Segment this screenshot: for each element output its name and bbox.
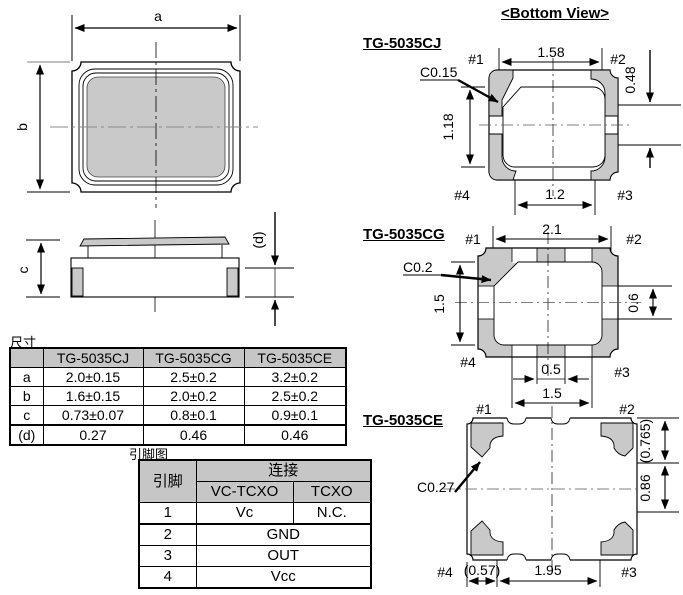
- dim-table-header-row: TG-5035CJ TG-5035CG TG-5035CE: [10, 348, 346, 368]
- dim-value: 0.8±0.1: [143, 406, 244, 426]
- terminal-pad: [72, 268, 83, 296]
- dim-row-d: (d) 0.27 0.46 0.46: [10, 425, 346, 445]
- ce-dim-right-bottom: 0.86: [637, 474, 653, 501]
- pin-number: 2: [139, 524, 196, 546]
- dim-table: TG-5035CJ TG-5035CG TG-5035CE a 2.0±0.15…: [9, 347, 347, 446]
- cg-chamfer-label: C0.2: [403, 259, 433, 275]
- dim-col-cg: TG-5035CG: [143, 348, 244, 368]
- pad-gap: [565, 344, 592, 358]
- pad-gap: [565, 247, 592, 263]
- dim-row-b: b 1.6±0.15 2.0±0.2 2.5±0.2: [10, 387, 346, 406]
- cj-pad1-label: #1: [468, 51, 484, 67]
- bottom-view-title: <Bottom View>: [480, 5, 630, 22]
- pin-header: 引脚: [139, 460, 196, 503]
- cg-bottom-view: 2.1 #1 #2 C0.2 1.5: [395, 218, 683, 410]
- cg-dim-bottom-center: 0.5: [541, 361, 561, 377]
- cj-pad2-label: #2: [610, 51, 626, 67]
- cj-chamfer-label: C0.15: [420, 64, 458, 80]
- pin-tcxo-value: N.C.: [293, 503, 371, 525]
- ce-dim-bottom-left: (0.57): [464, 562, 501, 578]
- ce-pad2-label: #2: [619, 401, 635, 417]
- dim-row-label: (d): [10, 425, 43, 445]
- dim-row-a: a 2.0±0.15 2.5±0.2 3.2±0.2: [10, 368, 346, 387]
- cj-dim-bottom: 1.2: [545, 186, 565, 202]
- dim-row-label: a: [10, 368, 43, 387]
- dim-col-ce: TG-5035CE: [244, 348, 346, 368]
- pin-table: 引脚 连接 VC-TCXO TCXO 1 Vc N.C. 2 GND 3 OUT…: [138, 459, 372, 589]
- pin-value: Vcc: [196, 567, 371, 589]
- top-view-drawing: a b: [8, 3, 338, 210]
- pin-number: 1: [139, 503, 196, 525]
- side-view-drawing: c (d): [8, 210, 338, 332]
- dim-a-label: a: [154, 8, 162, 24]
- dim-c-label: c: [15, 267, 31, 274]
- ce-bottom-view: #1 #2 C0.27 (0.765): [395, 400, 683, 595]
- lid-side: [80, 237, 229, 246]
- pin-row-2: 2 GND: [139, 524, 371, 546]
- dim-col-blank: [10, 348, 43, 368]
- cg-pad3-label: #3: [614, 364, 630, 380]
- cg-dim-left: 1.5: [431, 294, 447, 314]
- pin-number: 4: [139, 567, 196, 589]
- dim-row-c: c 0.73±0.07 0.8±0.1 0.9±0.1: [10, 406, 346, 426]
- cj-bottom-view: 1.58 #1 #2 C0.15 1.18 0.48 1.2 #4: [395, 28, 683, 216]
- cg-pad4-label: #4: [460, 354, 476, 370]
- ce-pad3-label: #3: [621, 564, 637, 580]
- pin-vctcxo-value: Vc: [196, 503, 293, 525]
- body-side: [71, 258, 239, 297]
- cj-dim-top: 1.58: [537, 44, 564, 60]
- dim-row-label: b: [10, 387, 43, 406]
- pin-row-1: 1 Vc N.C.: [139, 503, 371, 525]
- pin-value: GND: [196, 524, 371, 546]
- ce-pad1-label: #1: [476, 401, 492, 417]
- dim-value: 2.5±0.2: [143, 368, 244, 387]
- col-tcxo: TCXO: [293, 482, 371, 503]
- cg-dim-top: 2.1: [542, 221, 562, 237]
- dim-value: 0.27: [43, 425, 143, 445]
- ce-chamfer-label: C0.27: [417, 479, 455, 495]
- pin-number: 3: [139, 546, 196, 567]
- dim-row-label: c: [10, 406, 43, 426]
- cj-dim-right: 0.48: [622, 66, 638, 93]
- pin-header-row-1: 引脚 连接: [139, 460, 371, 482]
- dim-value: 2.5±0.2: [244, 387, 346, 406]
- cg-pad2-label: #2: [626, 231, 642, 247]
- cj-pad3-label: #3: [617, 187, 633, 203]
- cg-dim-bottom: 1.5: [542, 385, 562, 401]
- pin-value: OUT: [196, 546, 371, 567]
- dim-value: 0.9±0.1: [244, 406, 346, 426]
- dim-col-cj: TG-5035CJ: [43, 348, 143, 368]
- dim-value: 3.2±0.2: [244, 368, 346, 387]
- dim-value: 2.0±0.15: [43, 368, 143, 387]
- dim-value: 1.6±0.15: [43, 387, 143, 406]
- cj-cavity: [503, 87, 605, 167]
- dim-value: 0.46: [244, 425, 346, 445]
- col-vctcxo: VC-TCXO: [196, 482, 293, 503]
- pad-gap: [512, 344, 537, 358]
- ce-pad4-label: #4: [437, 564, 453, 580]
- dim-value: 2.0±0.2: [143, 387, 244, 406]
- dim-value: 0.46: [143, 425, 244, 445]
- datasheet-package-drawing: a b c: [0, 0, 683, 595]
- cj-pad4-label: #4: [454, 187, 470, 203]
- dim-d-label: (d): [250, 231, 266, 248]
- pin-row-3: 3 OUT: [139, 546, 371, 567]
- cg-pad1-label: #1: [465, 231, 481, 247]
- pad-gap: [512, 247, 537, 263]
- connection-header: 连接: [196, 460, 371, 482]
- pin-row-4: 4 Vcc: [139, 567, 371, 589]
- dim-b-label: b: [14, 123, 30, 131]
- terminal-pad: [227, 268, 238, 296]
- dim-value: 0.73±0.07: [43, 406, 143, 426]
- ce-dim-right-top: (0.765): [637, 419, 653, 463]
- cj-dim-left: 1.18: [440, 113, 456, 140]
- ce-dim-bottom: 1.95: [534, 562, 561, 578]
- cg-dim-right: 0.6: [625, 293, 641, 313]
